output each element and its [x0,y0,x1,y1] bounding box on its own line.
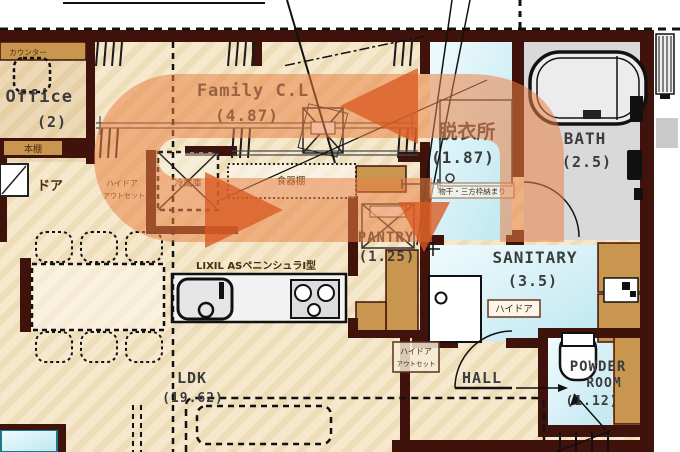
sliding-door-symbol [0,164,28,196]
powder-room-name-1: POWDER [570,359,627,375]
bath-name: BATH [564,129,607,148]
closet-door-panel [604,278,638,302]
hall-door-label-2: アウトセット [397,360,436,368]
sanitary-area: (3.5) [508,272,558,290]
high-door-label: ハイドア [495,304,533,315]
ldk-name: LDK [177,369,207,387]
powder-room-name-2: ROOM [586,376,621,391]
kitchen-sink [178,279,232,319]
dressing-room-area: (1.87) [431,148,495,167]
kitchen-counter [172,274,346,322]
door-label: ドア [37,179,63,194]
bath-area: (2.5) [562,153,612,171]
exterior-pad [656,118,678,148]
frame-note-label: 物干・三方枠納まり [438,186,506,196]
pantry-area: (1.25) [359,249,416,265]
dining-table [32,264,164,330]
pantry-shelf-2 [356,302,386,334]
corner-room-floor [1,430,57,452]
floor-plan-screenshot: e Office (2) Family C.L (4.87) 脱衣所 (1.87… [0,0,680,452]
floor-plan: e Office (2) Family C.L (4.87) 脱衣所 (1.87… [0,0,680,452]
hall-name: HALL [462,369,502,387]
office-area: (2) [37,113,67,131]
ldk-area: (19.62) [162,391,224,406]
water-heater [656,34,678,148]
hall-door-label-1: ハイドア [400,347,432,356]
office-name: e Office [0,87,73,107]
washbasin [429,276,481,342]
powder-room-area: (1.12) [566,394,619,409]
sanitary-name: SANITARY [492,248,577,267]
dining-bench [20,258,31,332]
cooktop [291,280,339,318]
bookshelf-label: 本棚 [24,143,42,155]
kitchen-model-label: LIXIL ASペニンシュラI型 [196,259,316,272]
counter-label: カウンター [9,48,47,57]
